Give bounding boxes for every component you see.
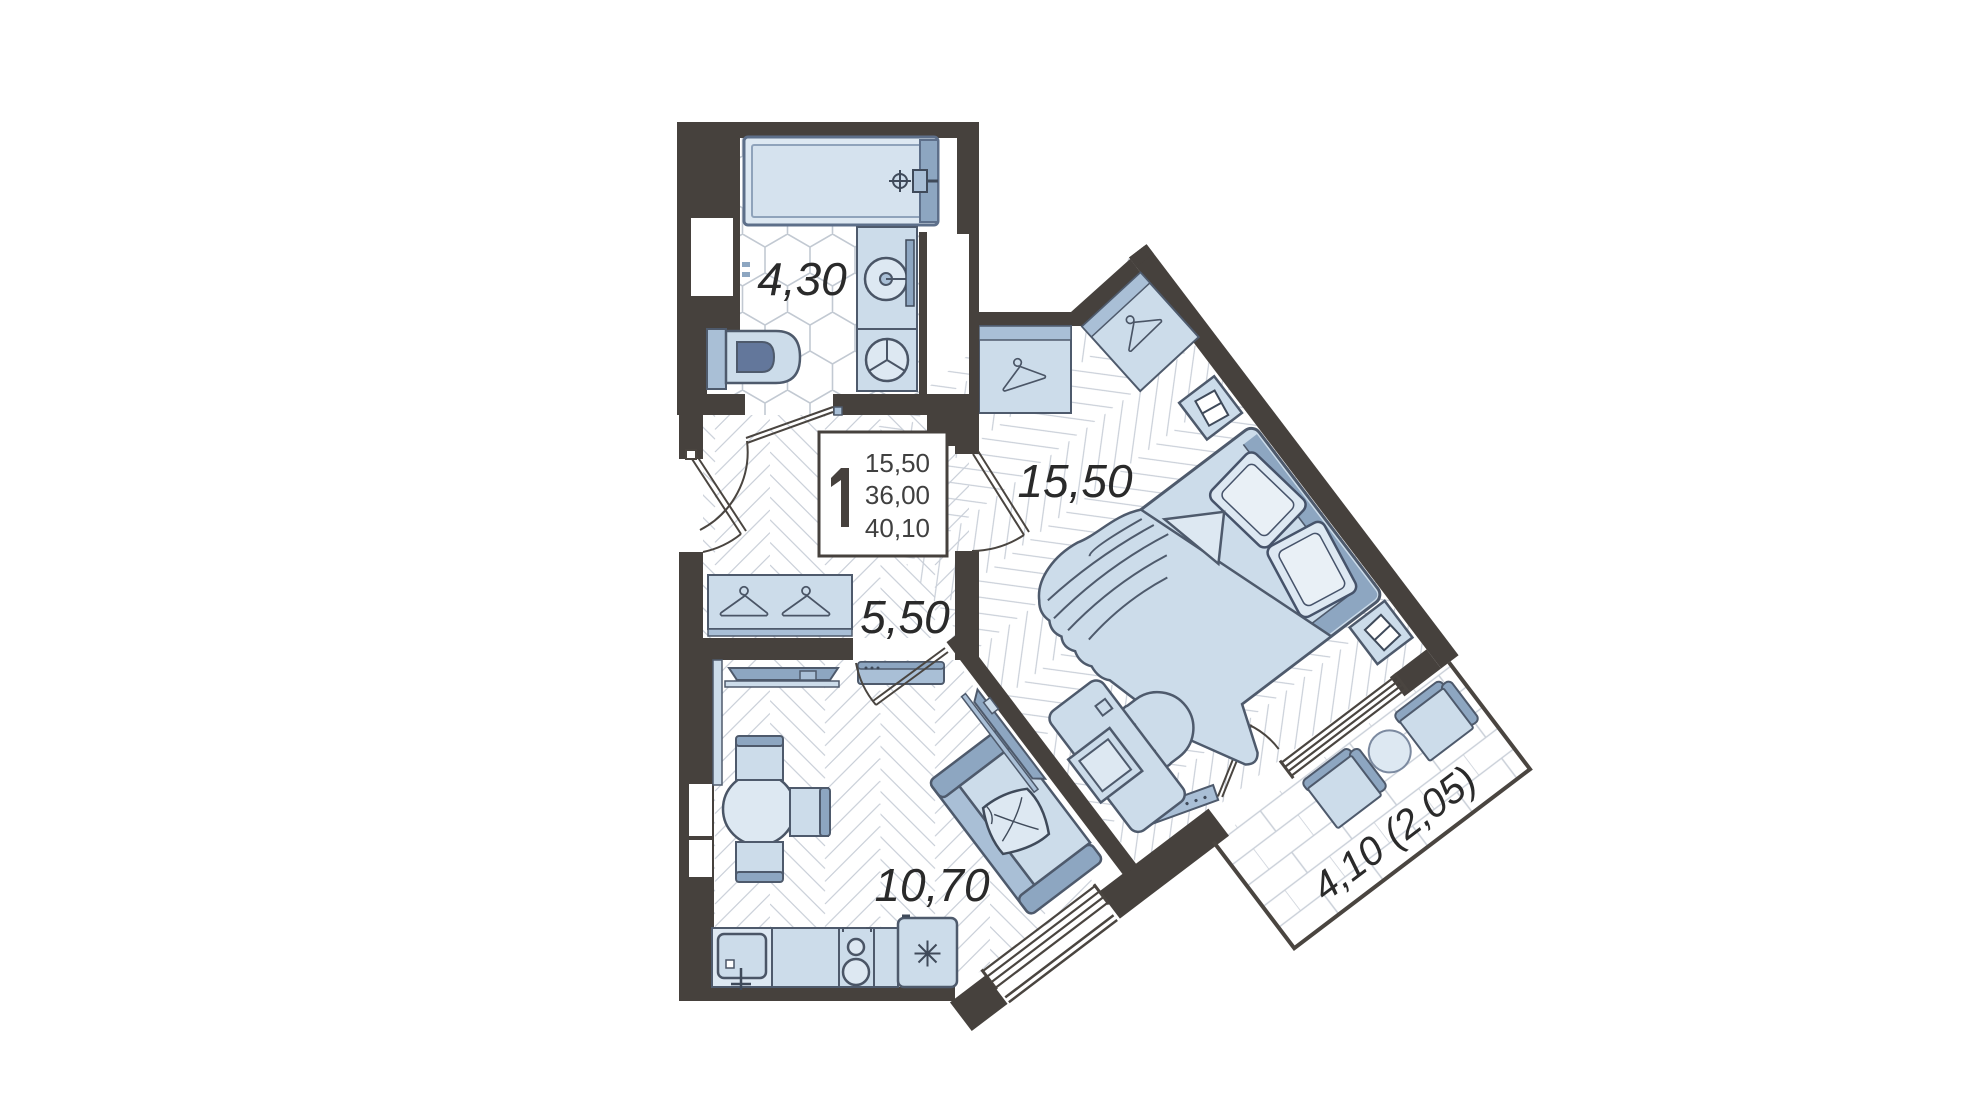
svg-text:5,50: 5,50 (860, 591, 950, 643)
svg-text:15,50: 15,50 (865, 448, 930, 478)
svg-text:15,50: 15,50 (1017, 455, 1133, 507)
svg-text:36,00: 36,00 (865, 480, 930, 510)
svg-text:40,10: 40,10 (865, 513, 930, 543)
svg-text:4,30: 4,30 (757, 253, 847, 305)
svg-text:10,70: 10,70 (874, 859, 990, 911)
